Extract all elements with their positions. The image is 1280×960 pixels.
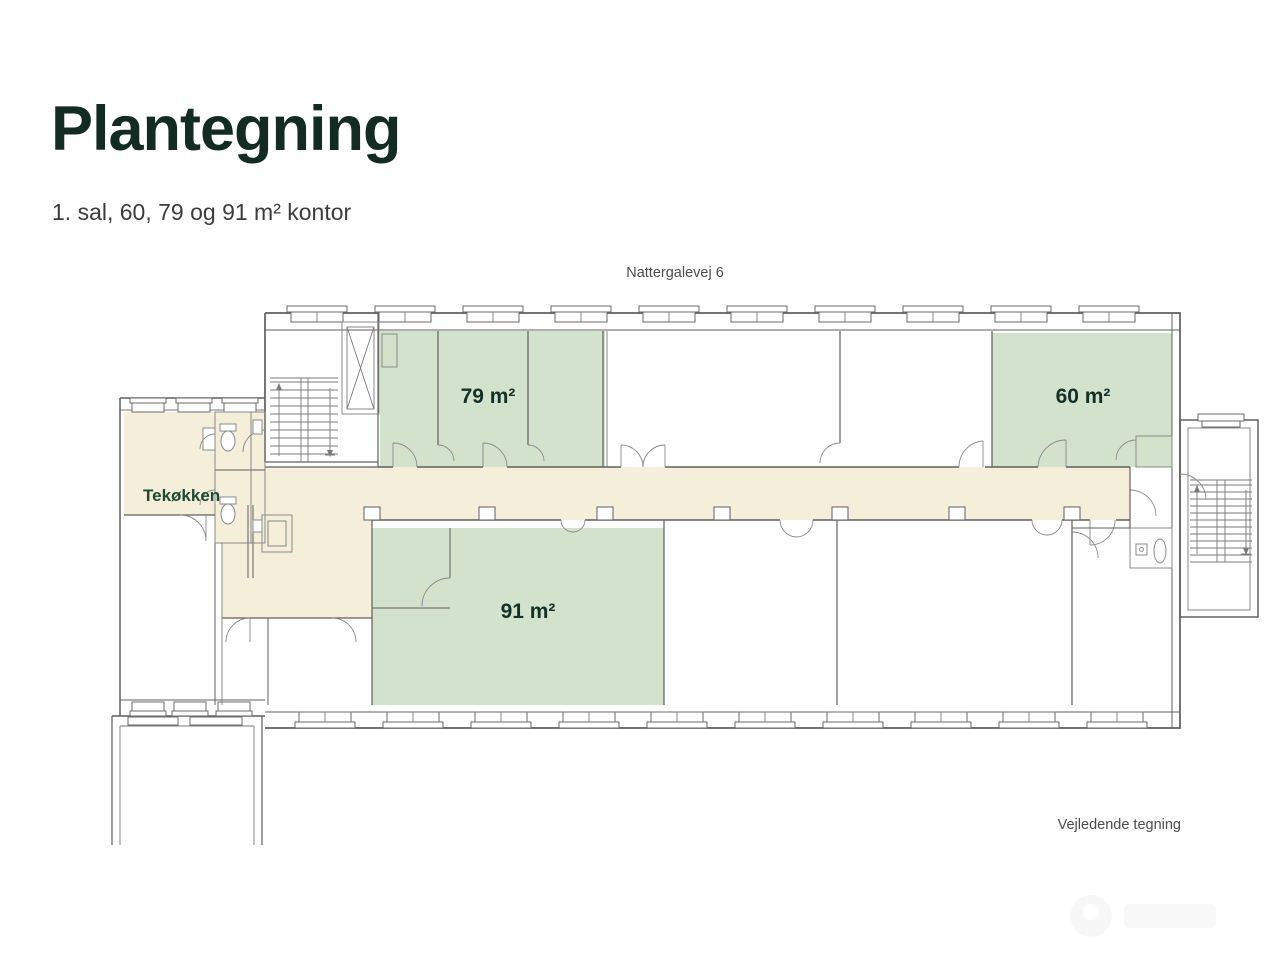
toilet-bowl-icon [1154, 539, 1166, 563]
sink-icon [1136, 544, 1147, 555]
counter-icon [203, 428, 215, 450]
watermark [1070, 895, 1216, 937]
toilet-tank-icon [220, 497, 236, 504]
toilet-tank-icon [220, 424, 236, 431]
bottom-facade-windows [295, 712, 1147, 728]
street-label: Nattergalevej 6 [626, 265, 724, 281]
toilet-bowl-icon [221, 431, 235, 451]
left-staircase [265, 313, 378, 467]
window [128, 717, 178, 725]
toilet-bowl-icon [221, 504, 235, 524]
floor-plan: Nattergalevej 6 79 m² 60 m² 91 m² Tekøkk… [0, 0, 1280, 960]
kitchen-label: Tekøkken [143, 486, 220, 505]
disclaimer-label: Vejledende tegning [1058, 817, 1181, 833]
top-facade-windows [287, 306, 1139, 322]
page: Plantegning 1. sal, 60, 79 og 91 m² kont… [0, 0, 1280, 960]
sink-icon [253, 420, 262, 434]
sink-icon [253, 520, 262, 532]
elevator-icon [342, 322, 379, 414]
room-79-label: 79 m² [461, 385, 516, 408]
window [190, 717, 242, 725]
right-staircase [1180, 414, 1258, 617]
room-91-label: 91 m² [501, 600, 556, 623]
lower-wing-outline [112, 716, 262, 845]
room-60-label: 60 m² [1056, 385, 1111, 408]
